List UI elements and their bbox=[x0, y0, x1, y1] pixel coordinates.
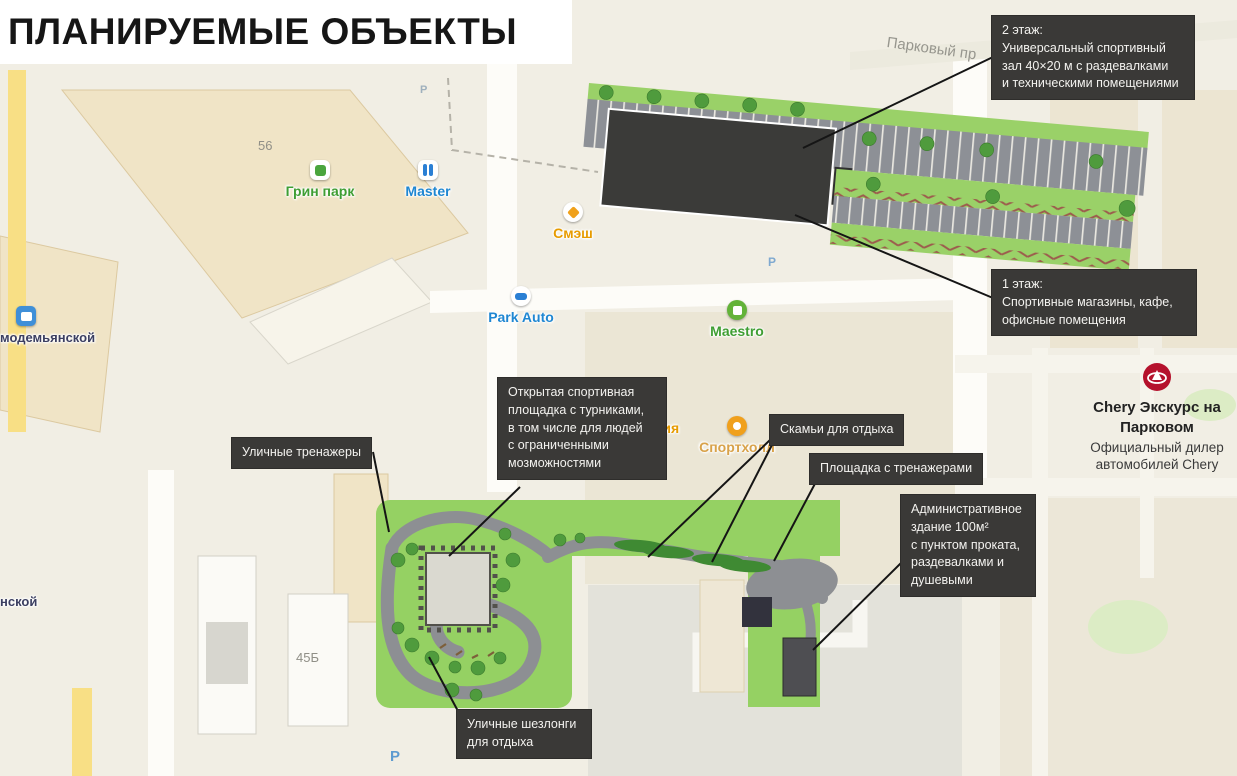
sports-court bbox=[426, 553, 490, 625]
planned-objects-map-slide: Грин парк Master Смэш Park Auto Maestro … bbox=[0, 0, 1237, 776]
admin-building-planned bbox=[783, 638, 816, 696]
map-base bbox=[0, 0, 1237, 776]
title-bar: ПЛАНИРУЕМЫЕ ОБЪЕКТЫ bbox=[0, 0, 572, 64]
yellow-road bbox=[8, 70, 26, 432]
yellow-road-bottom bbox=[72, 688, 92, 776]
planned-sport-building bbox=[600, 109, 836, 226]
page-title: ПЛАНИРУЕМЫЕ ОБЪЕКТЫ bbox=[0, 0, 572, 62]
